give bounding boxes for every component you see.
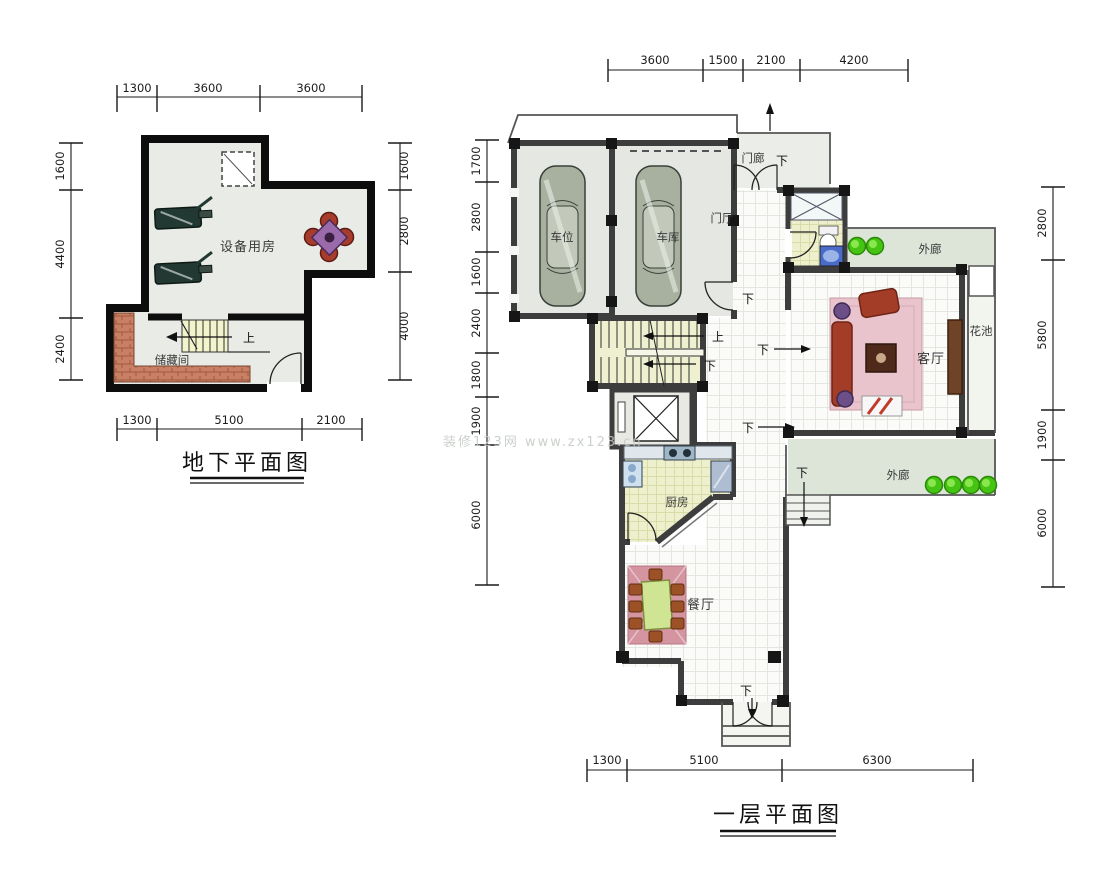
room-label-storage: 储藏间	[155, 353, 190, 367]
dim-label: 3600	[193, 81, 222, 95]
dim-label: 4400	[53, 239, 67, 268]
basement-dim-left: 1600 4400 2400	[53, 143, 83, 380]
stool	[834, 303, 850, 319]
garage-canopy	[508, 115, 737, 143]
room-label-flower-bed: 花池	[970, 324, 993, 338]
dim-label: 1800	[469, 360, 483, 389]
basement-dim-bottom: 1300 5100 2100	[117, 413, 362, 441]
dim-label: 2400	[469, 308, 483, 337]
basement-dim-top: 1300 3600 3600	[117, 81, 362, 112]
stair-up-label: 上	[712, 330, 724, 344]
dim-label: 4000	[397, 311, 411, 340]
dim-label: 3600	[640, 53, 669, 67]
dim-label: 1700	[469, 146, 483, 175]
stair-down-label: 下	[704, 359, 716, 373]
basement-plan: 设备用房 储藏间 上 1300 3600 3600 1600 4400 2400…	[53, 81, 412, 483]
watermark-text: 装修123网 www.zx123.cn	[443, 435, 643, 450]
dim-label: 1300	[122, 81, 151, 95]
dim-label: 5800	[1035, 320, 1049, 349]
hall-down-label: 下	[757, 343, 769, 357]
dim-label: 2400	[53, 334, 67, 363]
bathroom	[785, 190, 845, 268]
dim-label: 2800	[397, 216, 411, 245]
veranda-down-label: 下	[796, 466, 808, 480]
basement-door-gap	[267, 382, 301, 393]
ff-dim-right: 2800 5800 1900 6000	[1035, 187, 1065, 587]
dim-label: 6300	[862, 753, 891, 767]
bathroom-door-gap	[785, 229, 792, 257]
stair-up-label: 上	[243, 331, 255, 345]
exit-down-label: 下	[740, 684, 752, 698]
dim-label: 3600	[296, 81, 325, 95]
room-label-garage: 车库	[657, 230, 680, 244]
room-label-living: 客厅	[917, 351, 945, 367]
basement-dim-right: 1600 2800 4000	[388, 143, 412, 380]
stool	[837, 391, 853, 407]
floorplan-drawing: 设备用房 储藏间 上 1300 3600 3600 1600 4400 2400…	[0, 0, 1098, 886]
room-label-veranda-top: 外廊	[919, 242, 942, 256]
dim-label: 5100	[214, 413, 243, 427]
dining-table	[641, 580, 672, 630]
basement-title: 地下平面图	[182, 451, 312, 476]
room-label-veranda-bottom: 外廊	[887, 468, 910, 482]
dim-label: 2800	[1035, 208, 1049, 237]
staircase	[592, 318, 704, 386]
room-label-dining: 餐厅	[687, 597, 715, 613]
porch-down-label: 下	[776, 154, 788, 168]
room-label-foyer: 门厅	[711, 211, 734, 225]
basement-structure	[110, 139, 371, 393]
floorplan-sheet: 设备用房 储藏间 上 1300 3600 3600 1600 4400 2400…	[0, 0, 1098, 886]
tv-cabinet	[948, 320, 962, 394]
dim-label: 6000	[469, 500, 483, 529]
dining-furniture	[628, 566, 686, 644]
dim-label: 1600	[53, 151, 67, 180]
dim-label: 1600	[397, 151, 411, 180]
dim-label: 1900	[469, 406, 483, 435]
dim-label: 1500	[708, 53, 737, 67]
room-label-kitchen: 厨房	[666, 495, 689, 509]
room-label-porch: 门廊	[742, 151, 765, 165]
exterior-steps	[786, 495, 830, 525]
ff-dim-bottom: 1300 5100 6300	[587, 753, 973, 782]
dim-label: 5100	[689, 753, 718, 767]
first-floor-title: 一层平面图	[713, 803, 843, 828]
dim-label: 2100	[316, 413, 345, 427]
dim-label: 1600	[469, 257, 483, 286]
dim-label: 1300	[592, 753, 621, 767]
ff-dim-top: 3600 1500 2100 4200	[608, 53, 908, 82]
dim-label: 2100	[756, 53, 785, 67]
ff-dim-left: 1700 2800 1600 2400 1800 1900 6000	[469, 140, 499, 585]
dim-label: 1300	[122, 413, 151, 427]
hall-down-label-2: 下	[742, 421, 754, 435]
dim-label: 6000	[1035, 508, 1049, 537]
light-well	[222, 152, 254, 186]
room-label-carport: 车位	[551, 230, 574, 244]
dim-label: 2800	[469, 202, 483, 231]
dim-label: 1900	[1035, 420, 1049, 449]
room-label-equipment: 设备用房	[220, 239, 276, 255]
garage-down-label: 下	[742, 292, 754, 306]
dim-label: 4200	[839, 53, 868, 67]
